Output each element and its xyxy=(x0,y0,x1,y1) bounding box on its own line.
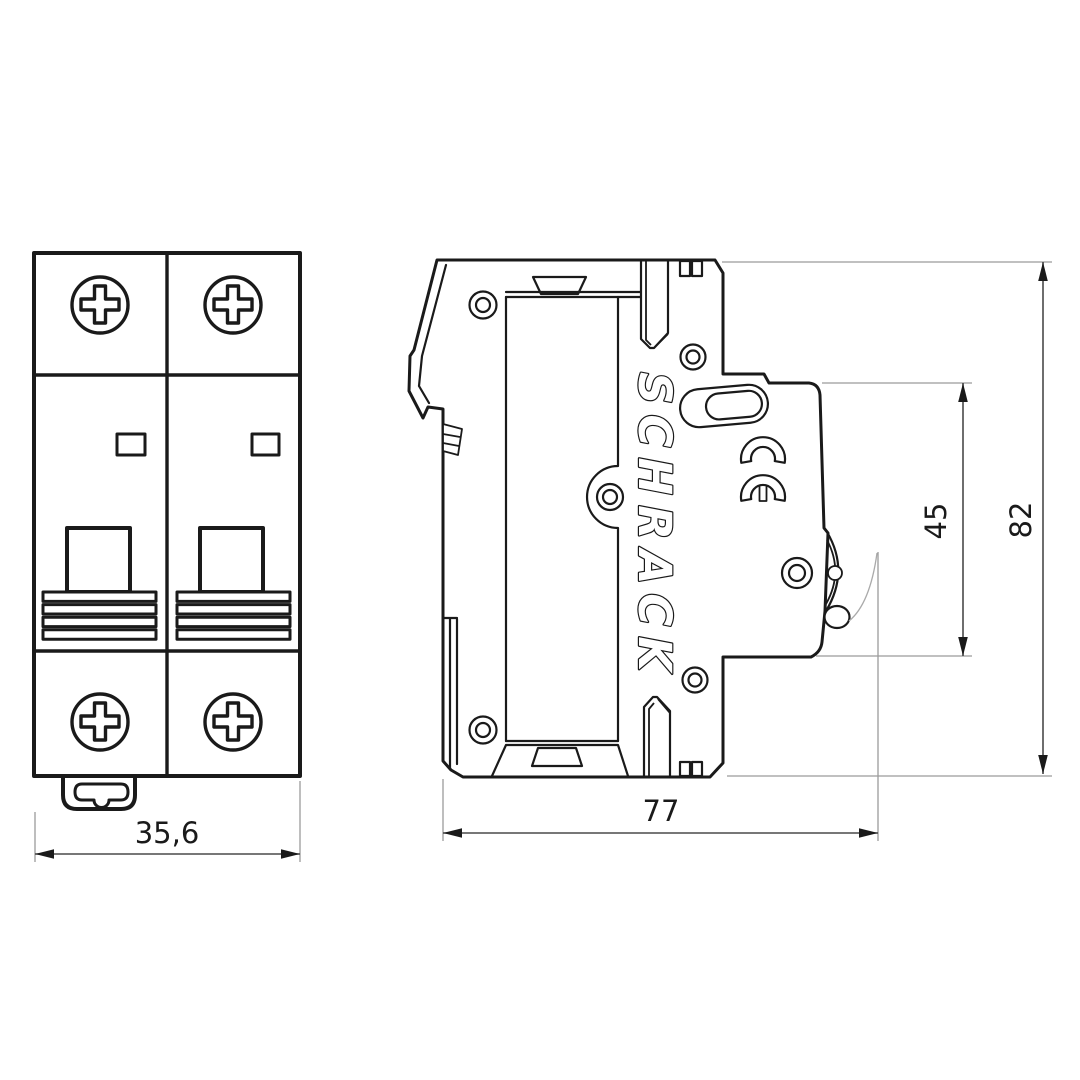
toggle-rib xyxy=(43,617,156,626)
center-label-panel xyxy=(492,277,640,776)
lever-swing-path xyxy=(849,553,877,621)
lever-tip xyxy=(825,606,850,628)
din-spring-ratchet xyxy=(443,424,462,455)
terminal-screw-icon-top-left xyxy=(72,277,128,333)
rivet-icon xyxy=(683,668,708,693)
arrowhead-left xyxy=(35,849,54,859)
toggle-rib xyxy=(43,630,156,639)
terminal-screw-icon-top-right xyxy=(205,277,261,333)
busbar-channel-top xyxy=(641,261,668,348)
terminal-screw-icon-bottom-left xyxy=(72,694,128,750)
din-clip-tab xyxy=(63,778,135,809)
front-view: 35,6 xyxy=(34,253,300,862)
arrowhead-right xyxy=(859,828,878,838)
arrowhead-top xyxy=(1038,262,1048,281)
terminal-teeth-bottom xyxy=(680,762,702,776)
toggle-lever-front-left xyxy=(43,528,156,639)
dimension-width-value: 35,6 xyxy=(135,816,200,850)
toggle-knob xyxy=(705,390,763,421)
busbar-channel-bottom xyxy=(644,697,670,776)
arrowhead-left xyxy=(443,828,462,838)
arrowhead-bottom xyxy=(1038,755,1048,774)
dimension-total-height: 82 xyxy=(722,262,1052,776)
toggle-handle xyxy=(200,528,263,592)
dimension-handle-height-value: 45 xyxy=(919,503,953,540)
side-view: SCHRACK CE xyxy=(409,260,1052,841)
dimension-depth-value: 77 xyxy=(643,794,680,828)
toggle-rib xyxy=(177,592,290,601)
rivet-icon xyxy=(681,345,706,370)
toggle-lever-front-right xyxy=(177,528,290,639)
din-clip-slider xyxy=(443,618,457,769)
rivet-icon xyxy=(597,484,623,510)
status-indicator-right xyxy=(252,434,279,455)
rivet-icon xyxy=(782,558,812,588)
technical-drawing-canvas: 35,6 xyxy=(0,0,1080,1080)
lever-pivot xyxy=(828,566,842,580)
dimension-total-height-value: 82 xyxy=(1004,502,1038,539)
toggle-handle xyxy=(67,528,130,592)
toggle-rib xyxy=(177,617,290,626)
din-flange-inner-line xyxy=(419,265,446,403)
ce-letter-c xyxy=(741,437,785,463)
ce-mark: CE xyxy=(741,437,785,501)
status-indicator-left xyxy=(117,434,145,455)
brand-text: SCHRACK xyxy=(628,372,681,681)
arrowhead-right xyxy=(281,849,300,859)
terminal-screw-icon-bottom-right xyxy=(205,694,261,750)
rivet-icon xyxy=(470,717,497,744)
breaker-dimensional-drawing: 35,6 xyxy=(0,0,1080,1080)
terminal-teeth-top xyxy=(680,261,702,276)
toggle-rib xyxy=(43,592,156,601)
toggle-rib xyxy=(43,605,156,614)
extension-lines xyxy=(722,262,1052,776)
arrowhead-top xyxy=(958,383,968,402)
toggle-rib xyxy=(177,630,290,639)
arrowhead-bottom xyxy=(958,637,968,656)
rivet-icon xyxy=(470,292,497,319)
bottom-vent-notch xyxy=(532,748,582,766)
toggle-rib xyxy=(177,605,290,614)
toggle-lever-side xyxy=(679,383,877,628)
